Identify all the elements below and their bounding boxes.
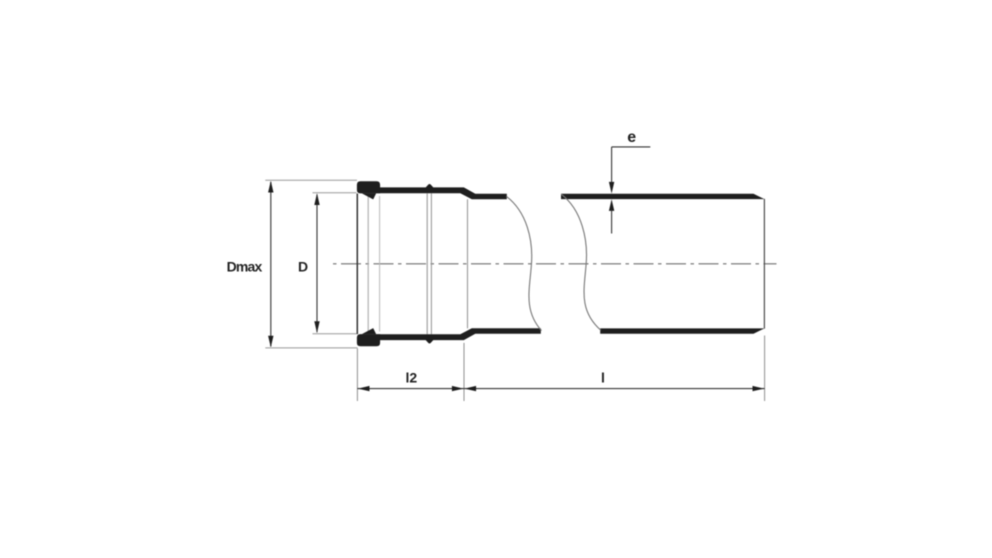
svg-text:Dmax: Dmax <box>227 259 263 275</box>
svg-text:D: D <box>298 259 308 275</box>
svg-text:l2: l2 <box>406 370 418 386</box>
svg-text:e: e <box>627 129 636 146</box>
svg-text:l: l <box>601 370 605 386</box>
